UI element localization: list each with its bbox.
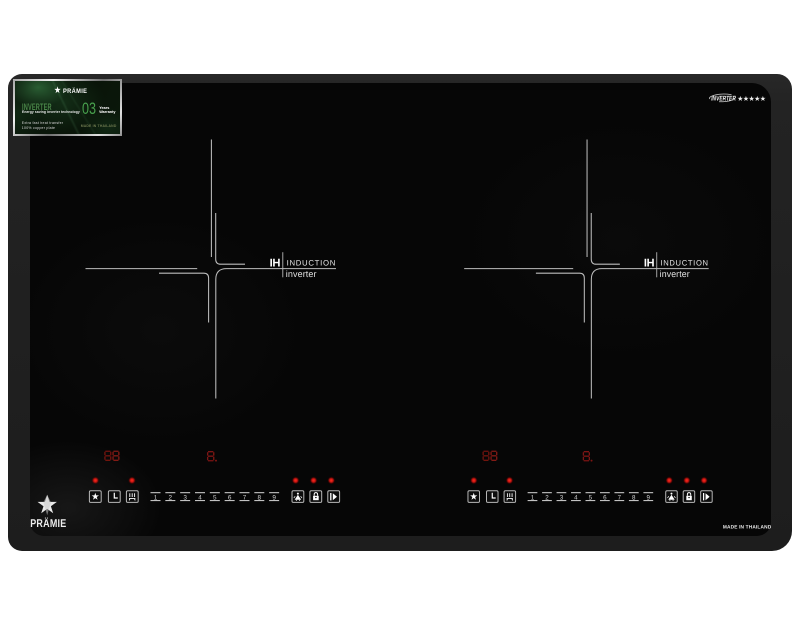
svg-text:INDUCTION: INDUCTION — [287, 259, 336, 268]
svg-text:INDUCTION: INDUCTION — [660, 259, 708, 268]
svg-text:MADE IN THAILAND: MADE IN THAILAND — [723, 525, 772, 531]
svg-text:inverter: inverter — [286, 269, 317, 279]
svg-text:IH: IH — [644, 257, 655, 269]
svg-text:IH: IH — [270, 257, 281, 269]
svg-text:inverter: inverter — [660, 269, 690, 279]
svg-text:PRÄMIE: PRÄMIE — [30, 517, 66, 530]
